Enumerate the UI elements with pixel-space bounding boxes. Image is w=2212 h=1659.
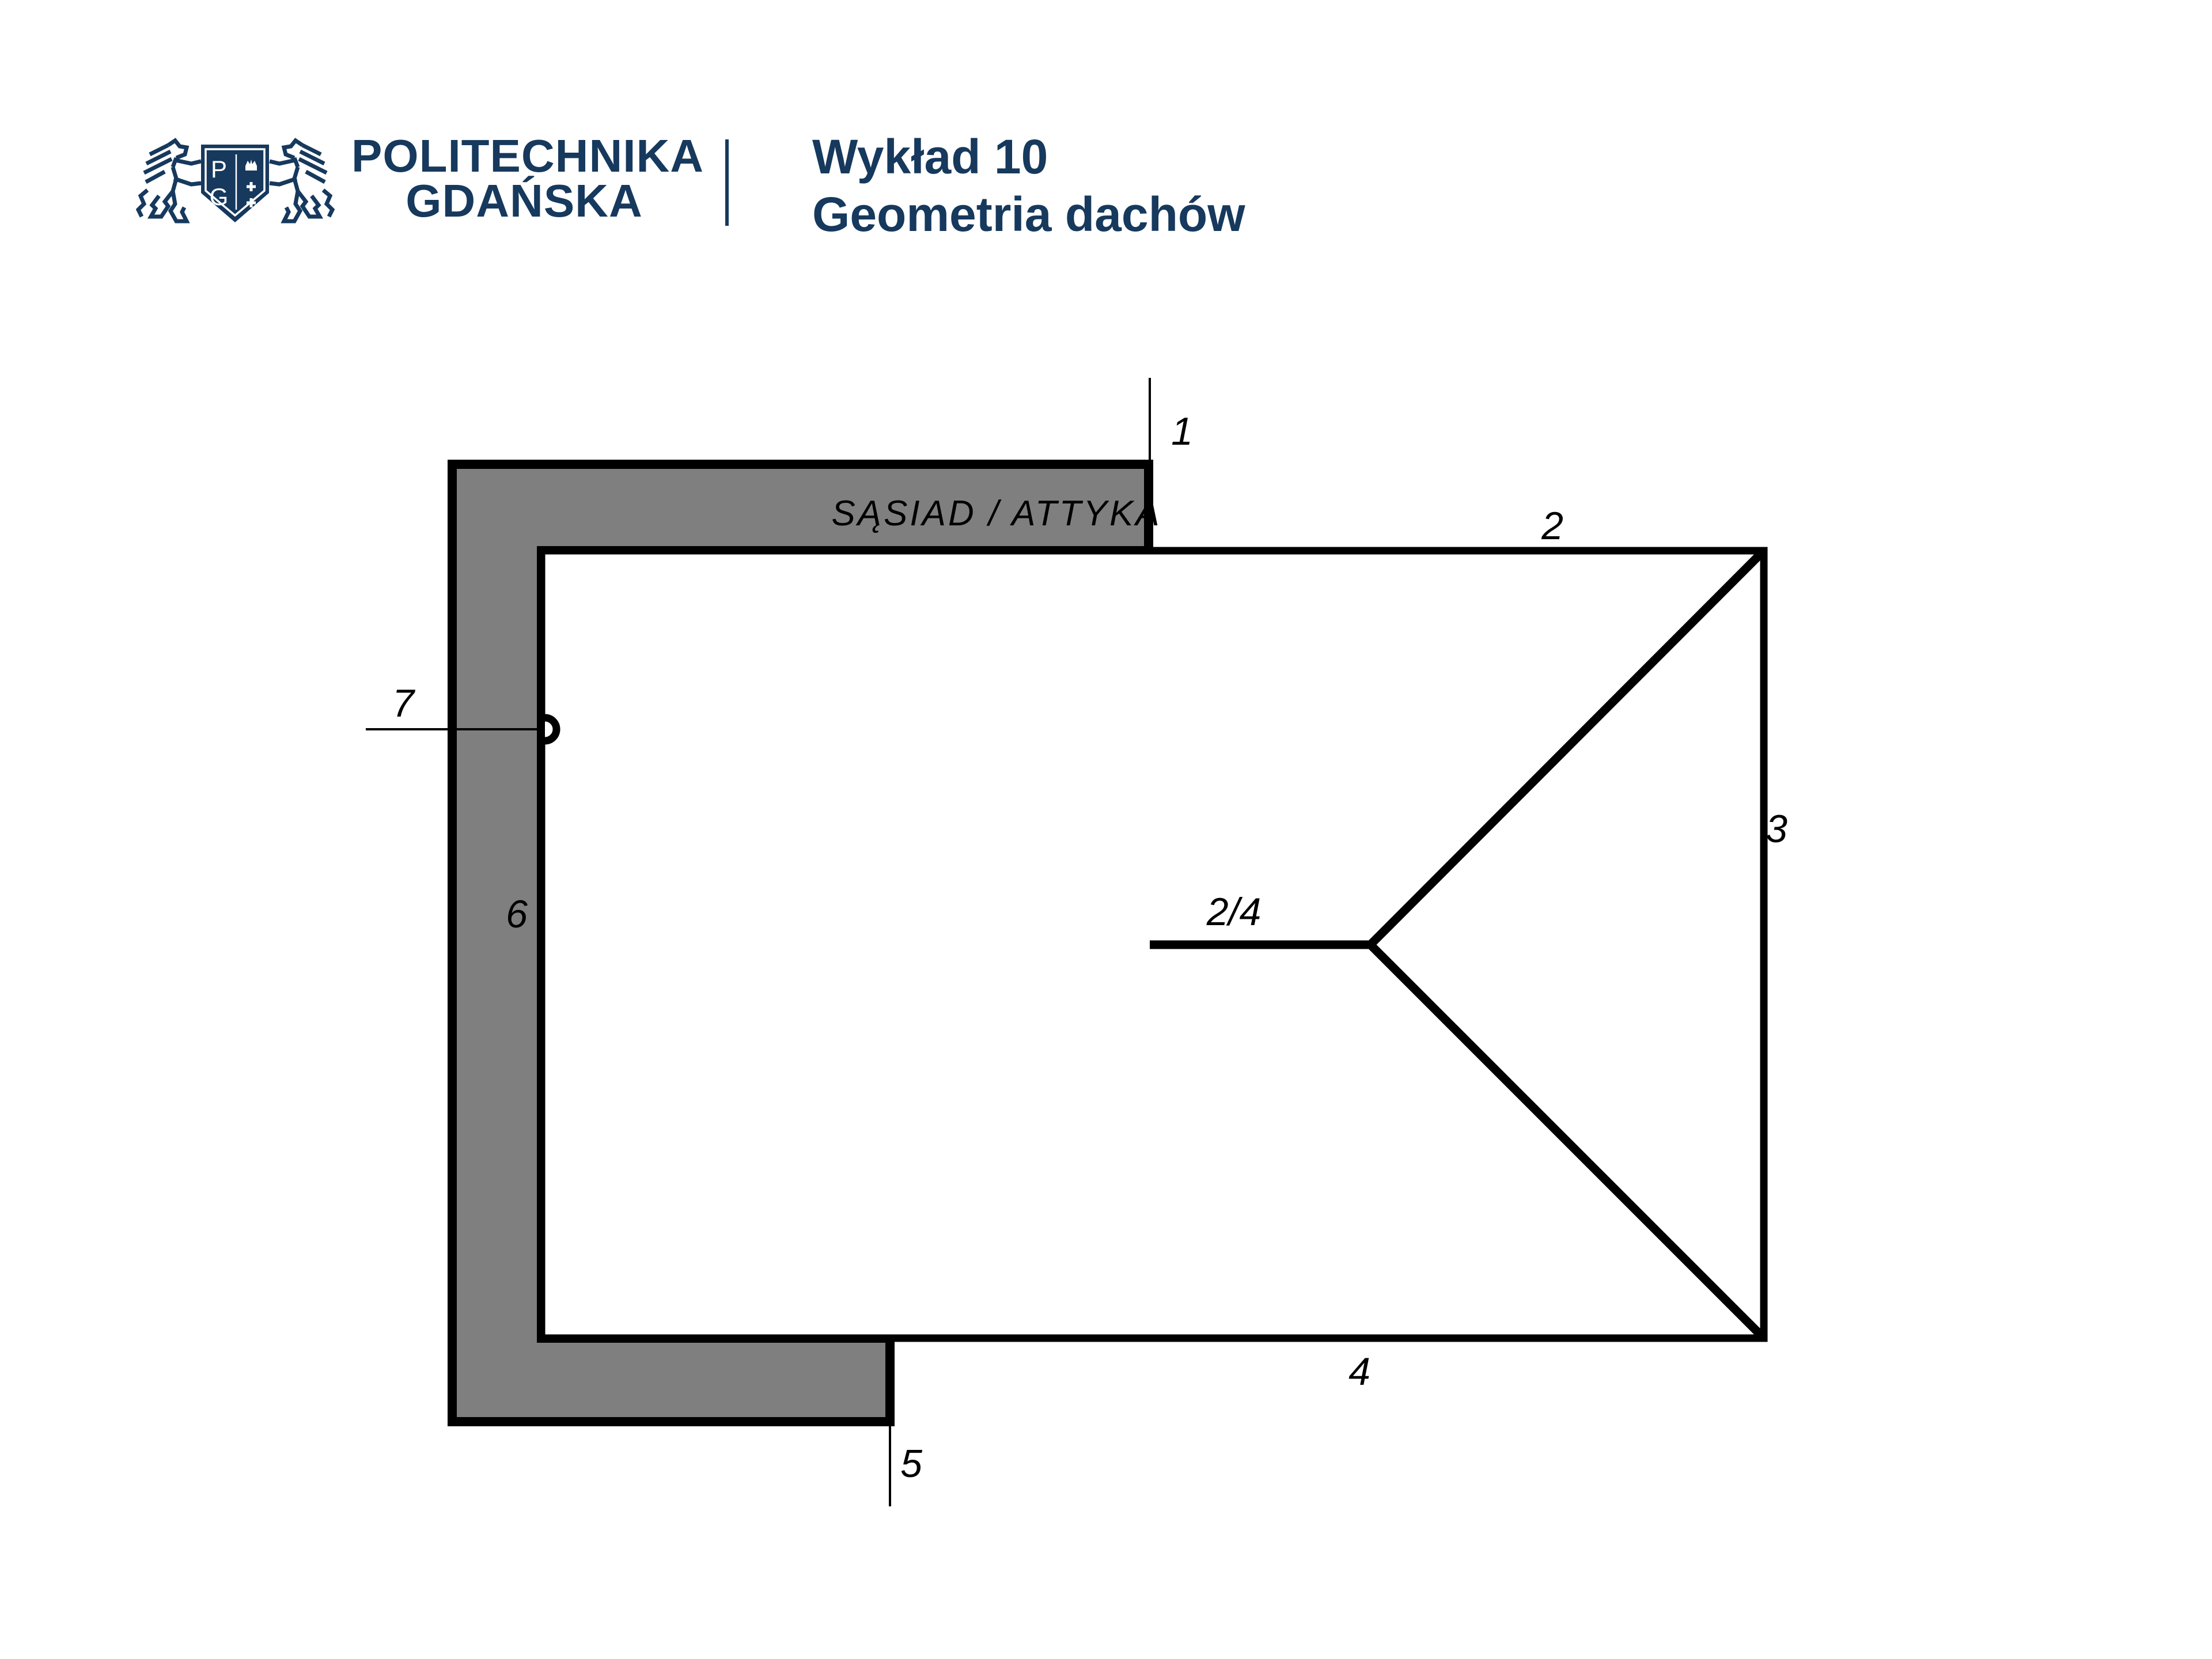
label-ridge-2-4: 2/4	[1206, 890, 1262, 934]
label-5: 5	[900, 1442, 922, 1486]
region-label: SĄSIAD / ATTYKA	[831, 494, 1161, 533]
label-7: 7	[392, 681, 415, 725]
label-4: 4	[1349, 1350, 1370, 1393]
label-1: 1	[1171, 410, 1193, 453]
drain-semicircle-icon	[545, 718, 556, 741]
label-6: 6	[506, 892, 528, 936]
slide: P G POLITECHNIKA GDAŃSKA Wykład 10 Geome…	[0, 0, 2212, 1659]
label-3: 3	[1766, 807, 1787, 851]
label-2: 2	[1541, 504, 1563, 548]
roof-plan-diagram: SĄSIAD / ATTYKA 1 2 3 4 5 6 7 2/4	[0, 0, 2212, 1659]
